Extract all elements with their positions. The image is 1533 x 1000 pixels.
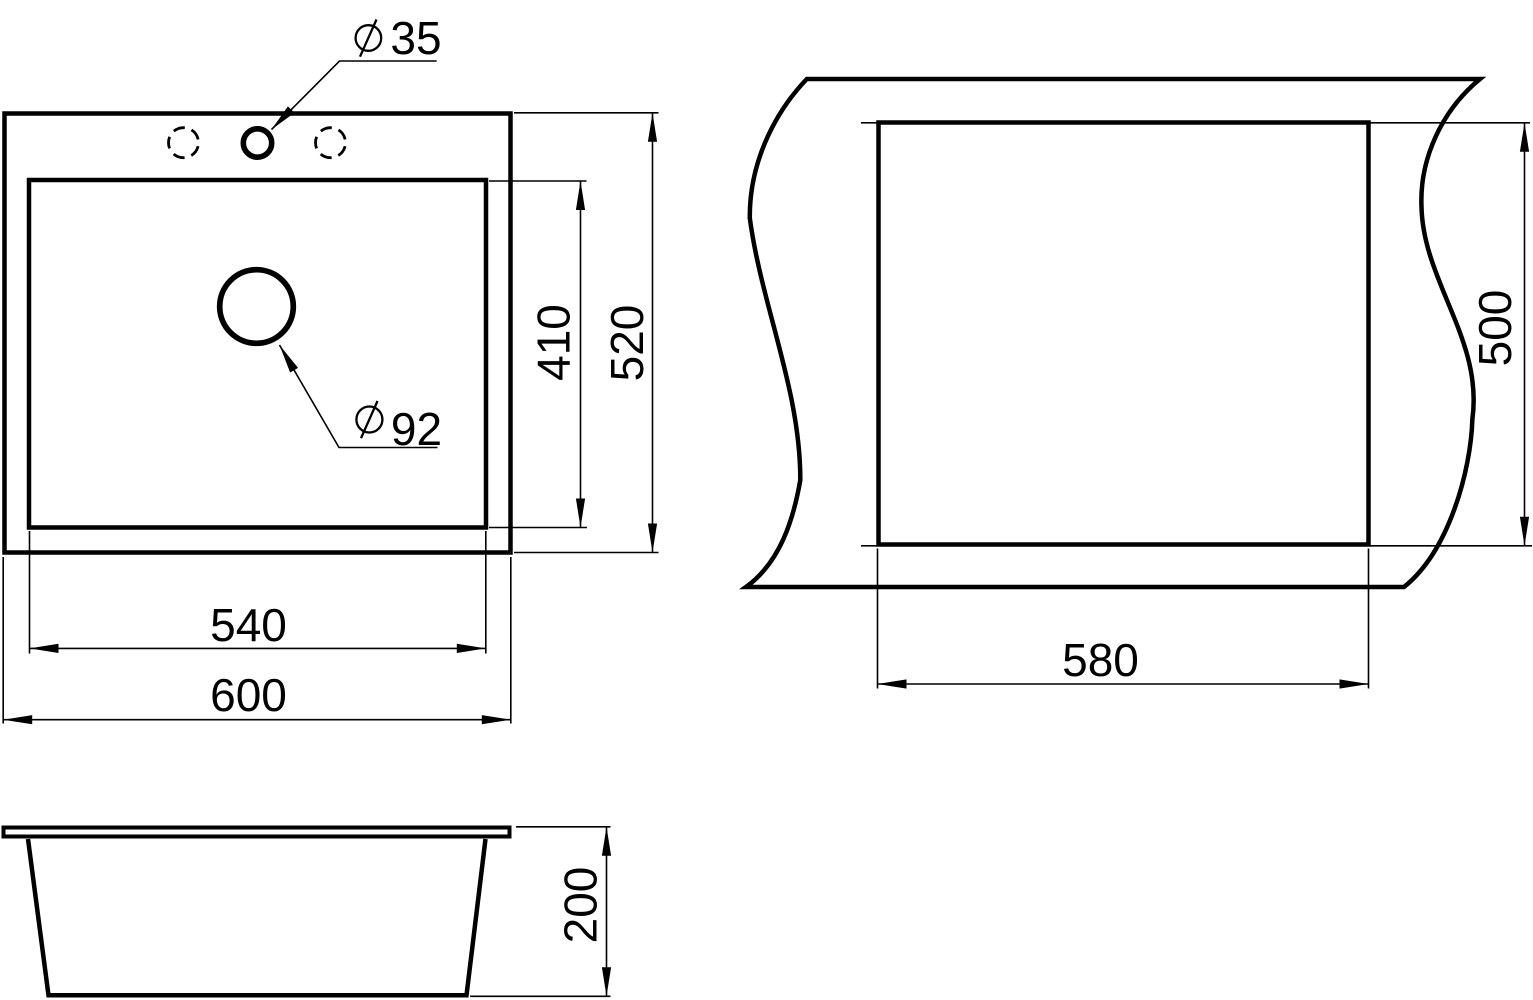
svg-text:520: 520: [601, 305, 653, 382]
svg-text:500: 500: [1469, 290, 1521, 367]
svg-text:410: 410: [527, 304, 579, 381]
svg-text:92: 92: [391, 403, 442, 455]
svg-text:600: 600: [210, 669, 287, 721]
svg-text:200: 200: [554, 867, 606, 944]
svg-text:540: 540: [210, 599, 287, 651]
svg-text:580: 580: [1062, 634, 1139, 686]
svg-text:35: 35: [390, 12, 441, 64]
